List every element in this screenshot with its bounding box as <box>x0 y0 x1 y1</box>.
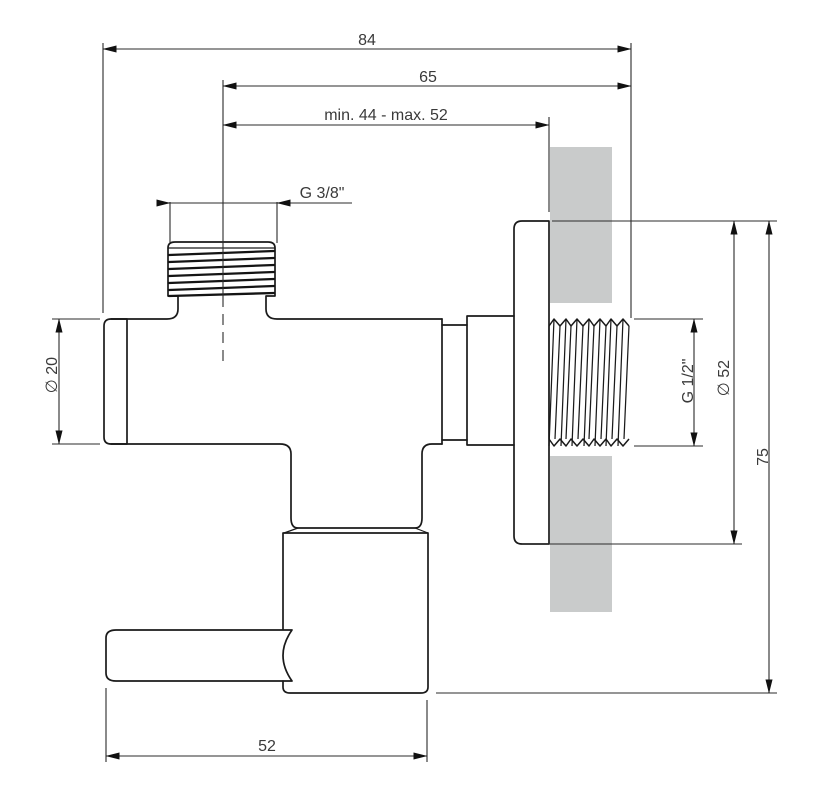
dimension-lines <box>52 43 777 762</box>
handle <box>106 630 292 681</box>
wall-lower-band <box>550 456 612 612</box>
label-wall-range: min. 44 - max. 52 <box>324 107 448 124</box>
wall-flange <box>514 221 549 544</box>
valve-body-top-and-boss <box>111 242 442 319</box>
label-body-diameter: ∅ 20 <box>44 357 61 393</box>
outlet-thread-g12 <box>549 319 629 446</box>
body-bottom-and-neck <box>111 444 442 528</box>
drawing-canvas: 84 65 min. 44 - max. 52 G 3/8" ∅ 20 G 1/… <box>0 0 823 800</box>
dimension-labels: 84 65 min. 44 - max. 52 G 3/8" ∅ 20 G 1/… <box>44 32 772 755</box>
wall-upper-band <box>550 147 612 303</box>
label-flange-diameter: ∅ 52 <box>716 360 733 396</box>
label-height: 75 <box>755 448 772 466</box>
bonnet <box>283 533 428 693</box>
label-outlet-thread: G 1/2" <box>680 359 697 404</box>
label-handle-length: 52 <box>258 738 276 755</box>
body-left-cap <box>104 319 127 444</box>
outlet-collar <box>467 316 514 445</box>
label-overall-width: 84 <box>358 32 376 49</box>
label-top-thread: G 3/8" <box>300 185 345 202</box>
top-thread-g38 <box>168 248 275 296</box>
label-body-to-axis: 65 <box>419 69 437 86</box>
outlet-neck <box>442 325 467 440</box>
angle-valve-technical-drawing: 84 65 min. 44 - max. 52 G 3/8" ∅ 20 G 1/… <box>0 0 823 800</box>
